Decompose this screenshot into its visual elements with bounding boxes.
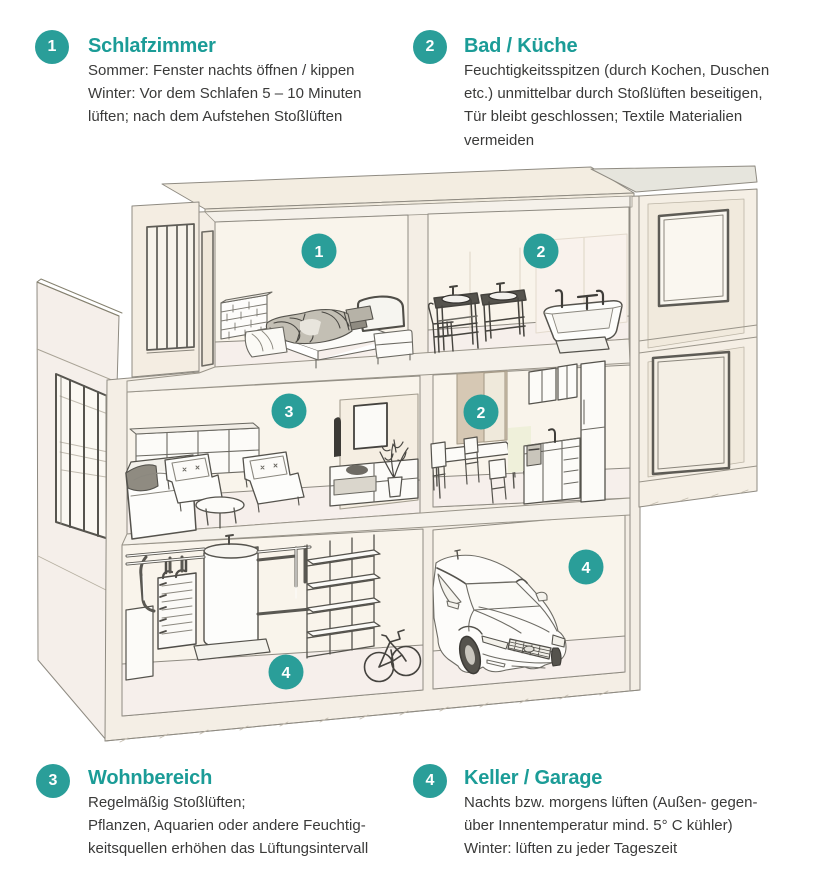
svg-text:3: 3 [285, 404, 294, 421]
svg-text:1: 1 [315, 244, 324, 261]
svg-text:2: 2 [477, 405, 486, 422]
svg-text:4: 4 [282, 665, 291, 682]
svg-text:4: 4 [582, 560, 591, 577]
svg-text:2: 2 [537, 244, 546, 261]
